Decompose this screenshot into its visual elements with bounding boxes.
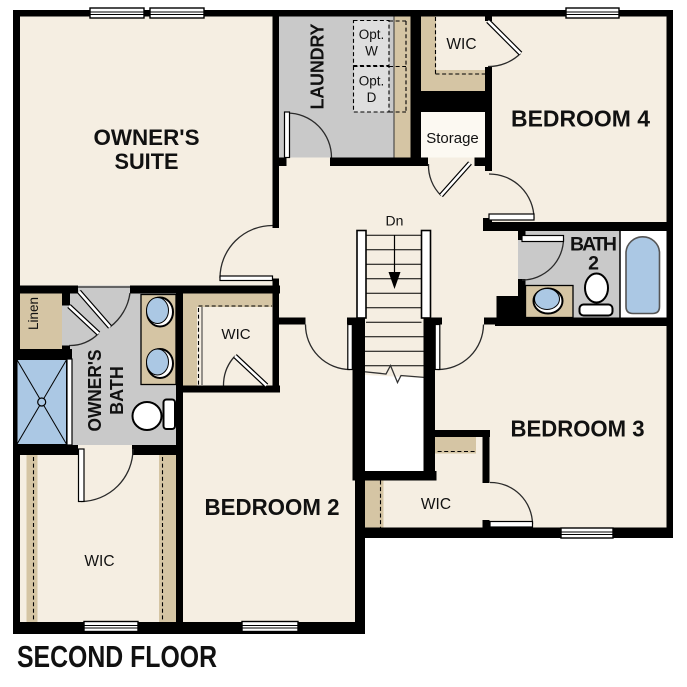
svg-text:W: W [365,44,378,59]
svg-text:WIC: WIC [84,553,114,570]
svg-text:OWNER'S: OWNER'S [94,125,200,150]
svg-text:Storage: Storage [426,130,479,147]
svg-text:WIC: WIC [421,496,451,513]
svg-text:OWNER'S: OWNER'S [85,350,105,432]
svg-text:BEDROOM 4: BEDROOM 4 [511,106,650,132]
svg-text:BATH: BATH [107,366,127,415]
svg-text:BEDROOM 3: BEDROOM 3 [511,416,645,442]
svg-text:D: D [367,90,377,105]
svg-text:Linen: Linen [26,297,41,330]
svg-text:Opt.: Opt. [359,74,385,89]
svg-text:SUITE: SUITE [115,149,179,174]
svg-text:SECOND FLOOR: SECOND FLOOR [17,640,217,674]
svg-text:2: 2 [588,253,599,275]
svg-text:LAUNDRY: LAUNDRY [308,24,328,110]
svg-text:Dn: Dn [386,213,404,229]
svg-text:WIC: WIC [446,36,476,53]
svg-text:WIC: WIC [221,326,250,343]
svg-text:Opt.: Opt. [359,27,385,42]
svg-text:BEDROOM 2: BEDROOM 2 [205,494,340,520]
